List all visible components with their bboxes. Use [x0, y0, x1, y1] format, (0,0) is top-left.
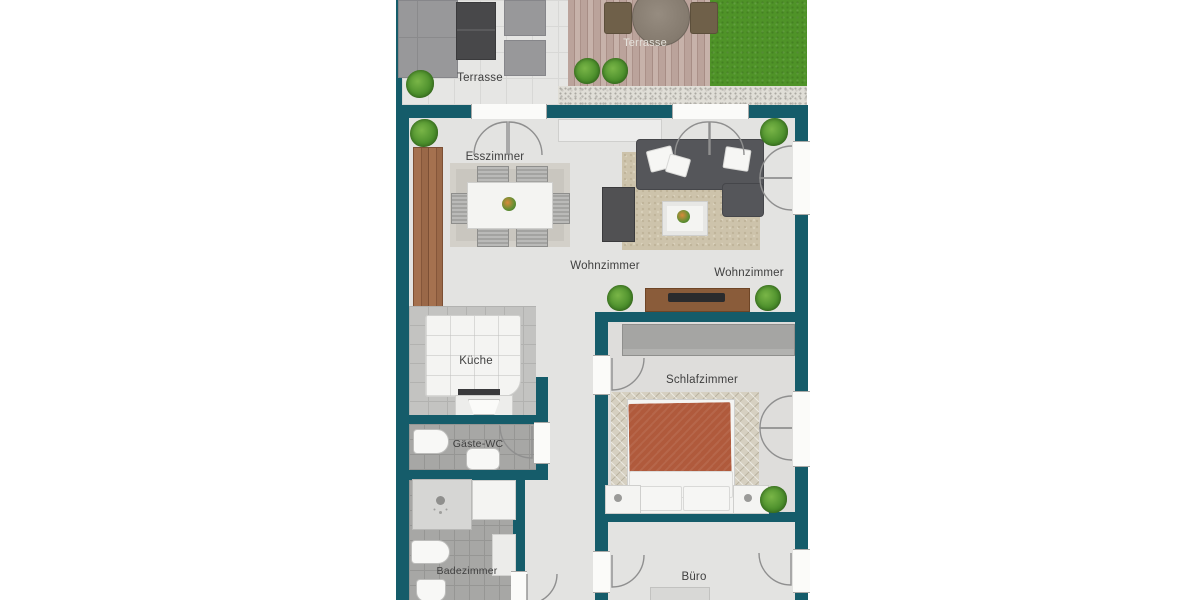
- gravel-path: [558, 86, 807, 105]
- office-right-door: [793, 549, 810, 593]
- bedroom-label: Schlafzimmer: [650, 374, 754, 386]
- french-door-arcs: [471, 119, 545, 157]
- toilet: [416, 579, 446, 600]
- terrace-left-label: Terrasse: [440, 72, 520, 84]
- shower-head-icon: [436, 496, 445, 505]
- side-table: [602, 187, 635, 242]
- kitchen-label: Küche: [446, 355, 506, 367]
- door-swing-arc: [610, 356, 646, 392]
- dining-chair: [516, 227, 548, 247]
- plant-icon: [760, 486, 787, 513]
- nightstand: [605, 485, 641, 514]
- door-swing-arc: [498, 424, 534, 460]
- plant-icon: [406, 70, 434, 98]
- plant-icon: [607, 285, 633, 311]
- washbasin: [466, 448, 500, 470]
- plant-icon: [410, 119, 438, 147]
- bedroom-hall-door: [593, 355, 610, 395]
- table-flowers: [502, 197, 516, 211]
- terrace-french-door-left: [471, 104, 547, 119]
- exterior-wall-left: [396, 105, 409, 600]
- wardrobe: [622, 324, 795, 356]
- wall-kitchen-wc: [409, 415, 548, 424]
- outdoor-armchair: [504, 40, 546, 76]
- living-label-a: Wohnzimmer: [558, 260, 652, 272]
- guest-wc-door: [534, 422, 550, 464]
- bed-pillow: [635, 486, 682, 511]
- lawn: [710, 0, 807, 86]
- deck-chair: [690, 2, 718, 34]
- outdoor-sofa: [398, 0, 458, 78]
- door-swing-arc: [757, 551, 793, 587]
- french-door-arcs: [672, 119, 747, 157]
- tv: [668, 293, 725, 302]
- terrace-french-door-right: [672, 104, 749, 119]
- living-french-door: [793, 141, 810, 215]
- bathroom-label: Badezimmer: [423, 565, 511, 577]
- bathtub: [411, 540, 450, 564]
- plant-icon: [574, 58, 600, 84]
- terrace-deck-label: Terrasse: [608, 37, 682, 49]
- wood-sideboard: [413, 147, 443, 331]
- dining-chair: [477, 227, 509, 247]
- french-door-arcs: [757, 393, 795, 463]
- deck-chair: [604, 2, 632, 34]
- floor-plan: Terrasse Terrasse Esszimmer Wohnzimmer W…: [0, 0, 1200, 600]
- plant-icon: [602, 58, 628, 84]
- door-swing-arc: [610, 553, 646, 589]
- outdoor-armchair: [504, 0, 546, 36]
- bathroom-cabinet: [472, 480, 516, 520]
- bed-duvet: [628, 402, 731, 475]
- bedroom-french-door: [793, 391, 810, 467]
- table-flowers: [677, 210, 690, 223]
- nightstand-knob: [744, 494, 752, 502]
- nightstand-knob: [614, 494, 622, 502]
- door-swing-arc: [525, 572, 559, 600]
- desk: [650, 587, 710, 600]
- outdoor-table: [456, 2, 496, 60]
- wall-bedroom-top: [595, 312, 808, 322]
- living-label-b: Wohnzimmer: [702, 267, 796, 279]
- office-label: Büro: [668, 571, 720, 583]
- bed-pillow: [683, 486, 730, 511]
- french-door-arcs: [757, 143, 795, 213]
- dining-chair: [551, 193, 570, 224]
- wall-wc-right-upper: [536, 377, 548, 423]
- plant-icon: [760, 118, 788, 146]
- office-left-door: [593, 551, 610, 593]
- plant-icon: [755, 285, 781, 311]
